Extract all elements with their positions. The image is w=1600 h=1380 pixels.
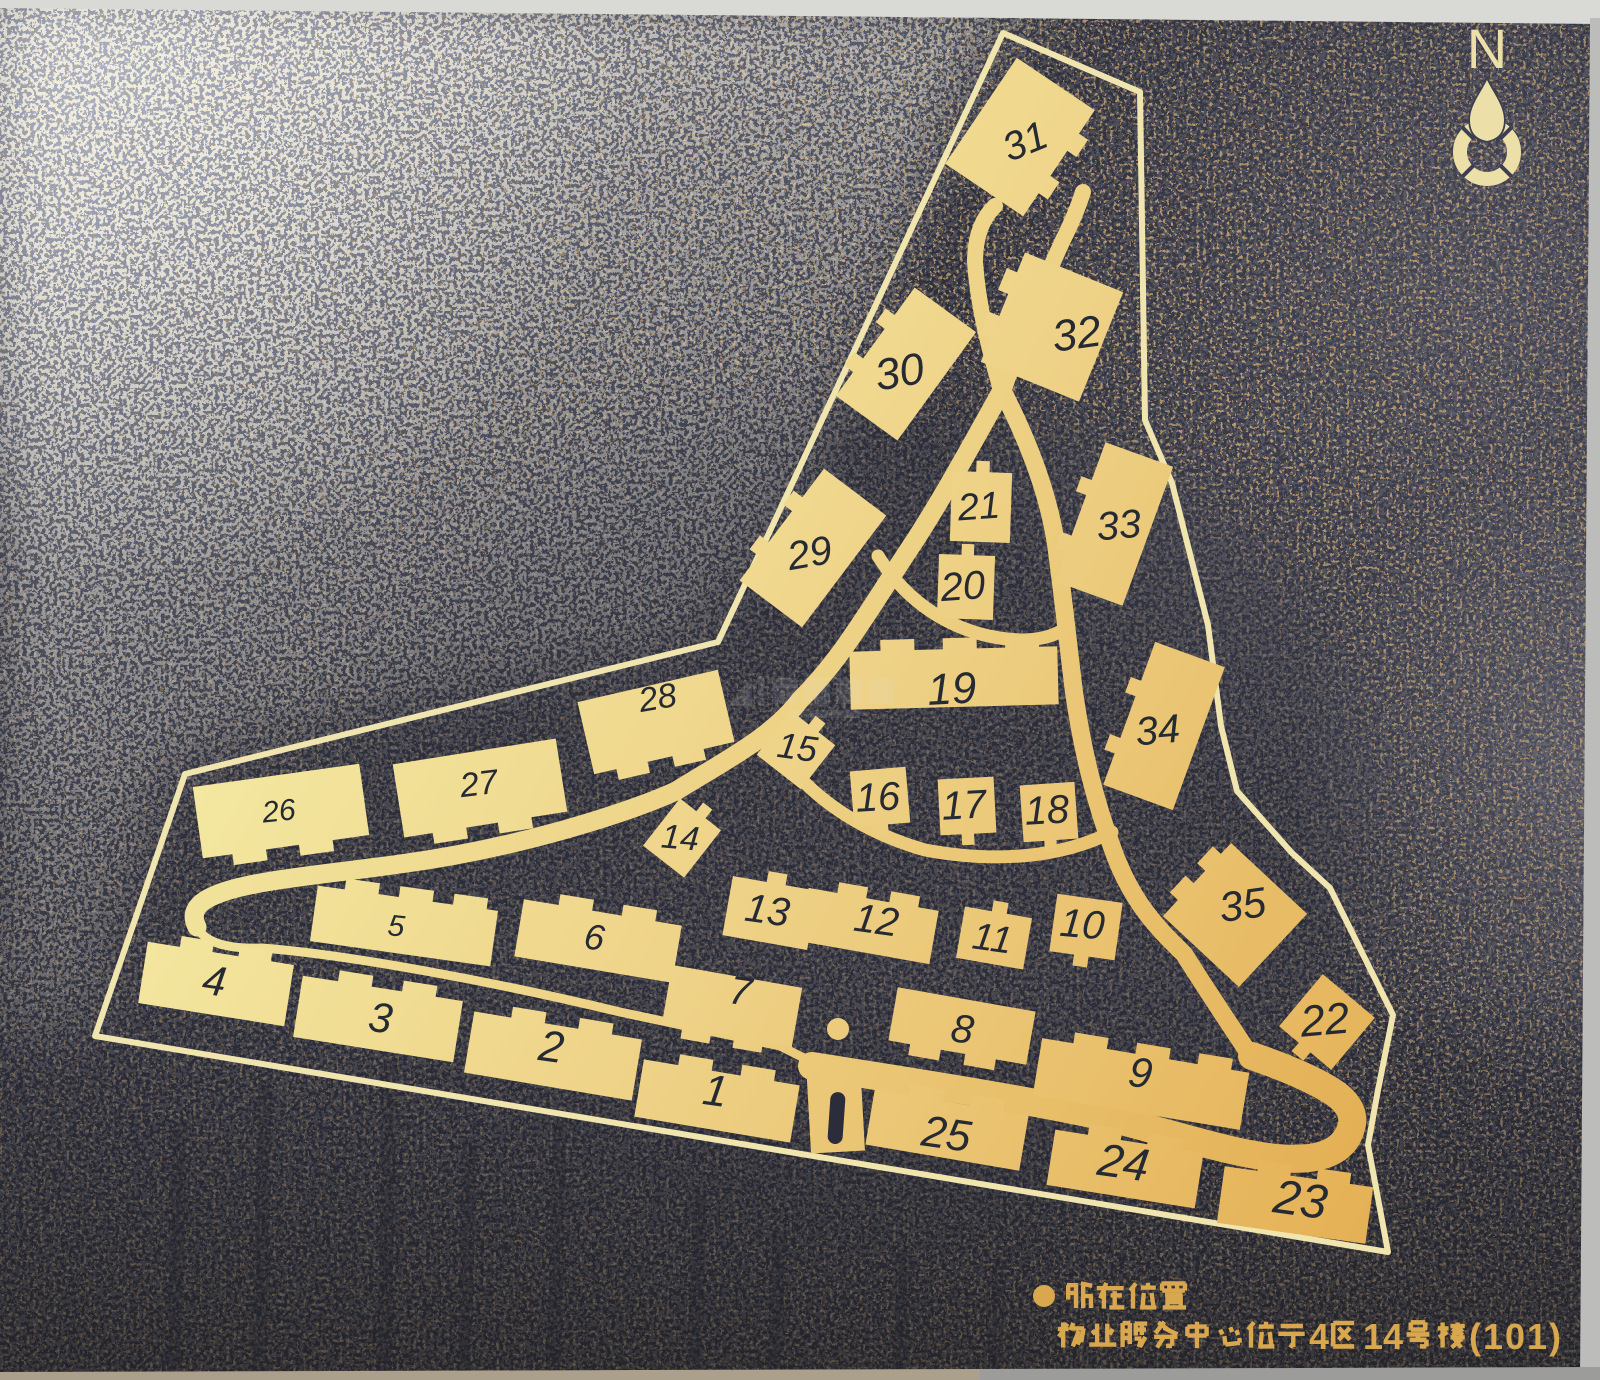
svg-text:18: 18 — [1024, 787, 1071, 833]
svg-text:33: 33 — [1095, 502, 1143, 550]
svg-text:11: 11 — [970, 916, 1015, 963]
svg-text:(101): (101) — [1469, 1316, 1563, 1357]
svg-text:24: 24 — [1094, 1133, 1153, 1192]
svg-text:15: 15 — [775, 724, 821, 770]
svg-text:4: 4 — [1309, 1316, 1329, 1357]
svg-text:12: 12 — [851, 896, 901, 946]
svg-text:10: 10 — [1058, 901, 1106, 949]
svg-text:34: 34 — [1134, 707, 1182, 755]
svg-text:16: 16 — [855, 774, 902, 820]
svg-text:14: 14 — [1363, 1316, 1403, 1357]
svg-text:26: 26 — [260, 793, 298, 829]
svg-text:21: 21 — [955, 485, 1001, 530]
svg-text:19: 19 — [926, 663, 977, 714]
svg-text:25: 25 — [918, 1106, 975, 1162]
svg-text:23: 23 — [1269, 1170, 1331, 1230]
svg-text:N: N — [1467, 17, 1507, 80]
svg-text:35: 35 — [1216, 878, 1269, 931]
svg-text:17: 17 — [941, 782, 989, 828]
svg-text:22: 22 — [1297, 994, 1351, 1047]
svg-text:29: 29 — [783, 528, 835, 579]
svg-text:28: 28 — [635, 676, 680, 720]
svg-text:20: 20 — [938, 563, 986, 610]
svg-text:14: 14 — [660, 817, 701, 858]
svg-text:27: 27 — [457, 763, 501, 806]
svg-text:32: 32 — [1049, 306, 1104, 361]
svg-text:13: 13 — [742, 886, 792, 936]
svg-text:30: 30 — [871, 344, 928, 401]
